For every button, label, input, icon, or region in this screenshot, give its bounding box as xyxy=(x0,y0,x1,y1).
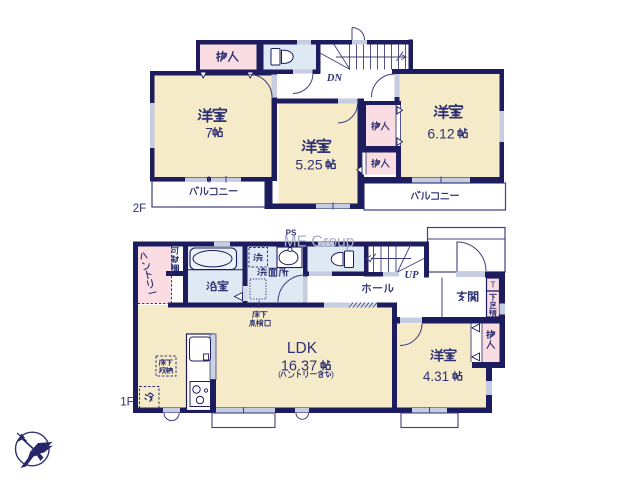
svg-text:1F: 1F xyxy=(120,397,133,409)
svg-text:(: ( xyxy=(278,369,281,379)
svg-text:2F: 2F xyxy=(133,203,146,215)
svg-text:LDK: LDK xyxy=(287,340,318,357)
svg-text:): ) xyxy=(331,369,334,379)
svg-text:ME Group: ME Group xyxy=(284,234,355,251)
svg-text:7: 7 xyxy=(205,125,213,141)
svg-text:16.37: 16.37 xyxy=(281,359,317,375)
svg-text:UP: UP xyxy=(405,270,420,281)
svg-text:4.31: 4.31 xyxy=(423,369,449,384)
svg-text:6.12: 6.12 xyxy=(427,126,454,142)
svg-text:DN: DN xyxy=(326,73,343,84)
svg-text:5.25: 5.25 xyxy=(295,157,322,173)
svg-text:T: T xyxy=(490,280,495,290)
